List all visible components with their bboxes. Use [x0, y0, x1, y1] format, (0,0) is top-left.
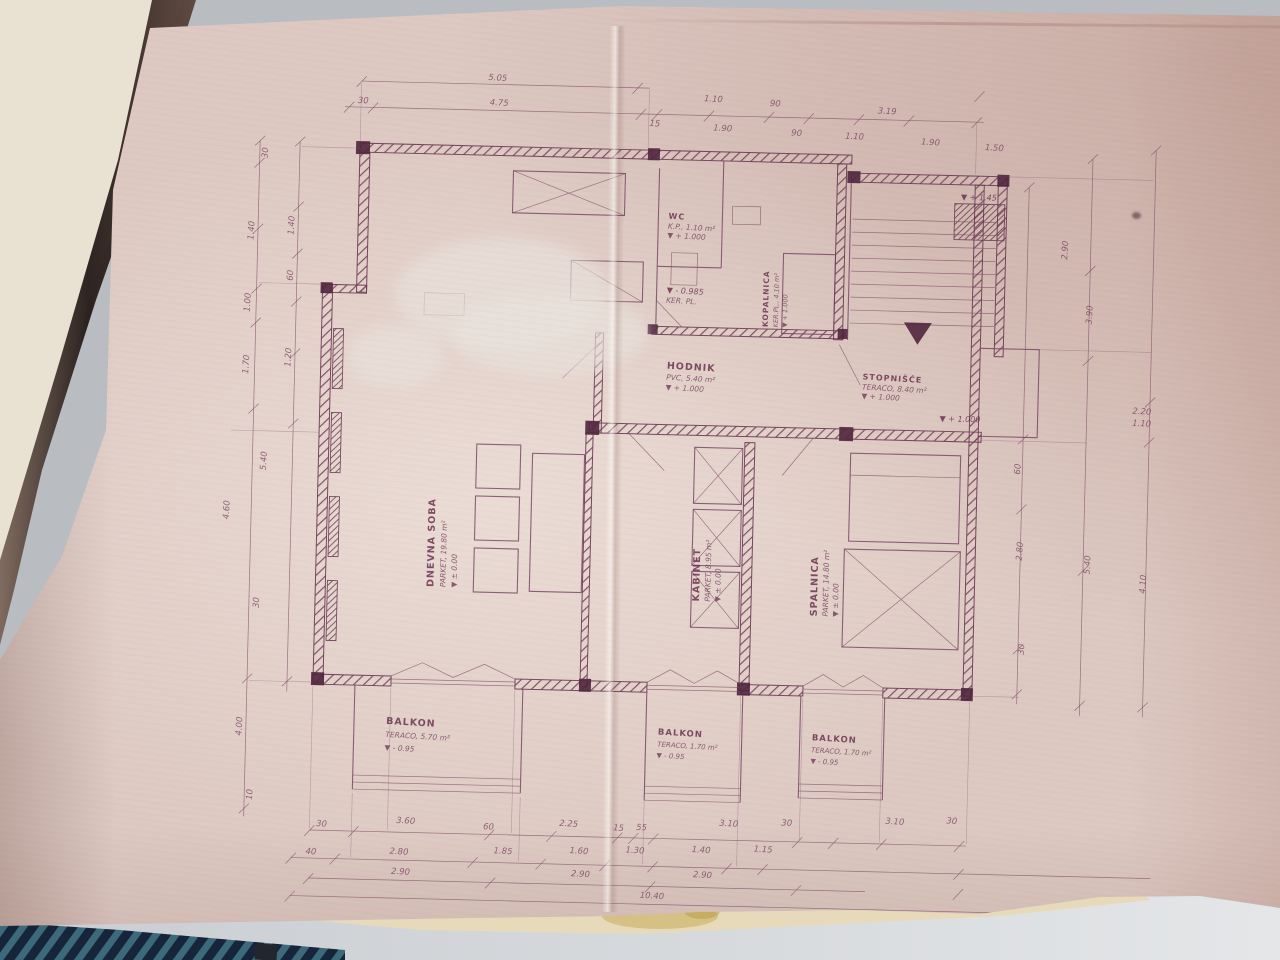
dimension-label: 1.10	[845, 132, 864, 143]
dimension-label: 30	[1017, 644, 1028, 655]
dimension-label: 1.40	[691, 845, 710, 856]
room-finish: KER.PL., 4.10 m²	[772, 273, 781, 328]
blur-smudge	[395, 238, 610, 350]
room-finish: PARKET, 14.80 m²	[821, 550, 832, 617]
room-label-spalnica: SPALNICA PARKET, 14.80 m² ▼ ± 0.00	[809, 549, 842, 617]
dimension-label: 3.10	[885, 817, 904, 828]
room-label-kopalnica: KOPALNICA KER.PL., 4.10 m² ▼ + 1.000	[761, 270, 790, 327]
dimension-label: 1.90	[713, 123, 732, 134]
wc-lower-level-note: ▼ - 0.985 KER. PL.	[666, 286, 704, 307]
dimension-label: 1.40	[246, 221, 257, 240]
dimension-label: 10	[245, 789, 256, 800]
dimension-label: 30	[316, 819, 327, 830]
dimension-label: 2.90	[693, 870, 712, 881]
room-level: ▼ + 1.000	[781, 294, 790, 327]
dimension-label: 30	[781, 818, 792, 829]
dimension-label: 5.40	[1083, 555, 1094, 574]
room-name: BALKON	[386, 716, 436, 730]
dimension-label: 40	[305, 847, 316, 858]
stair-treads	[850, 219, 996, 326]
room-name: WC	[668, 212, 685, 222]
dimension-label: 1.30	[625, 845, 644, 856]
stair-upper-level: ▼ + 1.45	[961, 193, 997, 203]
dimension-label: 3.19	[877, 106, 896, 117]
dimension-label: 2.20	[1132, 407, 1151, 418]
room-finish: PARKET, 19.80 m²	[438, 520, 449, 587]
room-level: ▼ ± 0.00	[831, 583, 841, 617]
dimension-chains	[220, 73, 1170, 922]
dimension-label: 1.15	[753, 845, 772, 856]
sink	[732, 206, 760, 225]
dimension-label: 90	[770, 99, 781, 110]
dark-tab	[255, 943, 278, 960]
room-finish: TERACO, 5.70 m²	[385, 730, 450, 743]
dimension-label: 1.50	[985, 143, 1004, 154]
bed	[849, 453, 961, 544]
drawing-sheet: DNEVNA SOBA PARKET, 19.80 m² ▼ ± 0.00 KA…	[0, 0, 1280, 960]
room-name: KABINET	[691, 548, 703, 602]
dimension-label: 3.90	[1085, 305, 1096, 324]
room-level: ▼ ± 0.00	[449, 554, 459, 588]
room-level: ▼ + 1.000	[665, 383, 704, 394]
dimension-label: 4.10	[1138, 575, 1149, 594]
room-name: SPALNICA	[809, 556, 821, 616]
room-finish: TERACO, 8.40 m²	[862, 382, 927, 395]
dimension-label: 30	[946, 816, 957, 827]
blur-smudge	[452, 292, 647, 376]
dimension-label: 3.60	[396, 816, 415, 827]
room-label-hodnik: HODNIK PVC, 5.40 m² ▼ + 1.000	[665, 361, 716, 395]
dimension-label: 5.40	[259, 451, 270, 470]
room-name: BALKON	[658, 728, 704, 741]
dimension-label: 1.00	[243, 293, 254, 312]
dimension-label: 30	[252, 597, 263, 608]
dimension-label: 30	[358, 96, 369, 107]
dimension-label: 4.00	[234, 716, 245, 735]
room-name: STOPNIŠĆE	[862, 370, 922, 385]
dimension-label: 60	[483, 822, 494, 833]
finish-note: KER. PL.	[666, 296, 697, 307]
windows-and-balconies	[352, 661, 885, 806]
dimension-label: 30	[261, 147, 272, 158]
room-level: ▼ - 0.95	[656, 751, 685, 761]
room-label-stopnisce: STOPNIŠĆE TERACO, 8.40 m² ▼ + 1.000	[861, 370, 927, 404]
toilet	[671, 253, 698, 286]
dimension-label: 1.70	[241, 355, 252, 374]
room-name: KOPALNICA	[761, 270, 771, 327]
room-finish: TERACO, 1.70 m²	[657, 741, 718, 753]
level-value: ▼ - 0.985	[666, 286, 703, 297]
dimension-label: 1.10	[704, 94, 723, 105]
dimension-label: 3.10	[719, 819, 738, 830]
room-finish: PARKET, 8.95 m²	[703, 540, 714, 602]
room-label-dnevna-soba: DNEVNA SOBA PARKET, 19.80 m² ▼ ± 0.00	[425, 498, 460, 588]
room-level: ▼ - 0.95	[810, 757, 839, 767]
room-label-kabinet: KABINET PARKET, 8.95 m² ▼ ± 0.00	[691, 539, 724, 602]
dimension-label: 4.75	[490, 98, 509, 109]
photo-of-floor-plan: DNEVNA SOBA PARKET, 19.80 m² ▼ ± 0.00 KA…	[0, 0, 1280, 960]
room-level: ▼ + 1.000	[861, 391, 900, 402]
dimension-label: 5.05	[488, 73, 507, 84]
under-page-edge-line	[600, 18, 1280, 28]
center-fold-crease	[602, 26, 626, 912]
dimension-label: 1.20	[283, 348, 294, 367]
partitions-and-furniture	[416, 154, 1044, 652]
dimension-label: 55	[636, 823, 647, 834]
ink-speck	[1132, 212, 1141, 219]
room-name: HODNIK	[667, 361, 716, 375]
dimension-label: 1.85	[493, 846, 512, 857]
room-label-balkon-3: BALKON TERACO, 1.70 m² ▼ - 0.95	[810, 733, 872, 769]
dimension-label: 1.90	[921, 137, 940, 148]
room-level: ▼ ± 0.00	[713, 568, 723, 602]
dimension-label: 4.60	[222, 500, 233, 519]
columns	[311, 140, 1010, 702]
dimension-label: 2.80	[1015, 541, 1026, 560]
dimension-labels: 5.05304.751.10903.19151.90901.101.901.50…	[213, 67, 1162, 914]
room-level: ▼ - 0.95	[384, 743, 415, 754]
dimension-label: 1.60	[569, 846, 588, 857]
dimension-label: 2.90	[571, 869, 590, 880]
dimension-label: 2.80	[389, 847, 408, 858]
stair-mid-level: ▼ + 1.000	[939, 414, 980, 424]
dimension-label: 60	[1013, 463, 1024, 474]
dimension-label: 90	[791, 128, 802, 139]
dimension-label: 1.40	[287, 216, 298, 235]
room-name: DNEVNA SOBA	[425, 498, 438, 587]
room-finish: K.P., 1.10 m²	[668, 222, 716, 234]
dimension-label: 15	[649, 119, 660, 130]
room-finish: PVC, 5.40 m²	[666, 373, 716, 385]
dimension-label: 10.40	[639, 891, 664, 902]
blur-smudge	[348, 326, 443, 388]
dimension-label: 15	[613, 823, 624, 834]
room-label-wc: WC K.P., 1.10 m² ▼ + 1.000	[667, 212, 716, 243]
room-name: BALKON	[812, 733, 858, 746]
dimension-label: 2.25	[559, 819, 578, 830]
walls	[313, 142, 1008, 701]
floor-plan-drawing: DNEVNA SOBA PARKET, 19.80 m² ▼ ± 0.00 KA…	[0, 0, 1280, 960]
room-label-balkon-2: BALKON TERACO, 1.70 m² ▼ - 0.95	[656, 728, 718, 764]
room-label-balkon-1: BALKON TERACO, 5.70 m² ▼ - 0.95	[384, 716, 451, 756]
room-finish: TERACO, 1.70 m²	[811, 746, 872, 758]
dimension-label: 60	[286, 270, 297, 281]
stair-direction-arrow	[903, 322, 932, 345]
dimension-label: 2.90	[391, 867, 410, 878]
room-level: ▼ + 1.000	[667, 231, 706, 242]
dimension-label: 1.10	[1132, 419, 1151, 430]
bathtub	[782, 253, 836, 334]
dimension-label: 2.90	[1060, 241, 1071, 260]
